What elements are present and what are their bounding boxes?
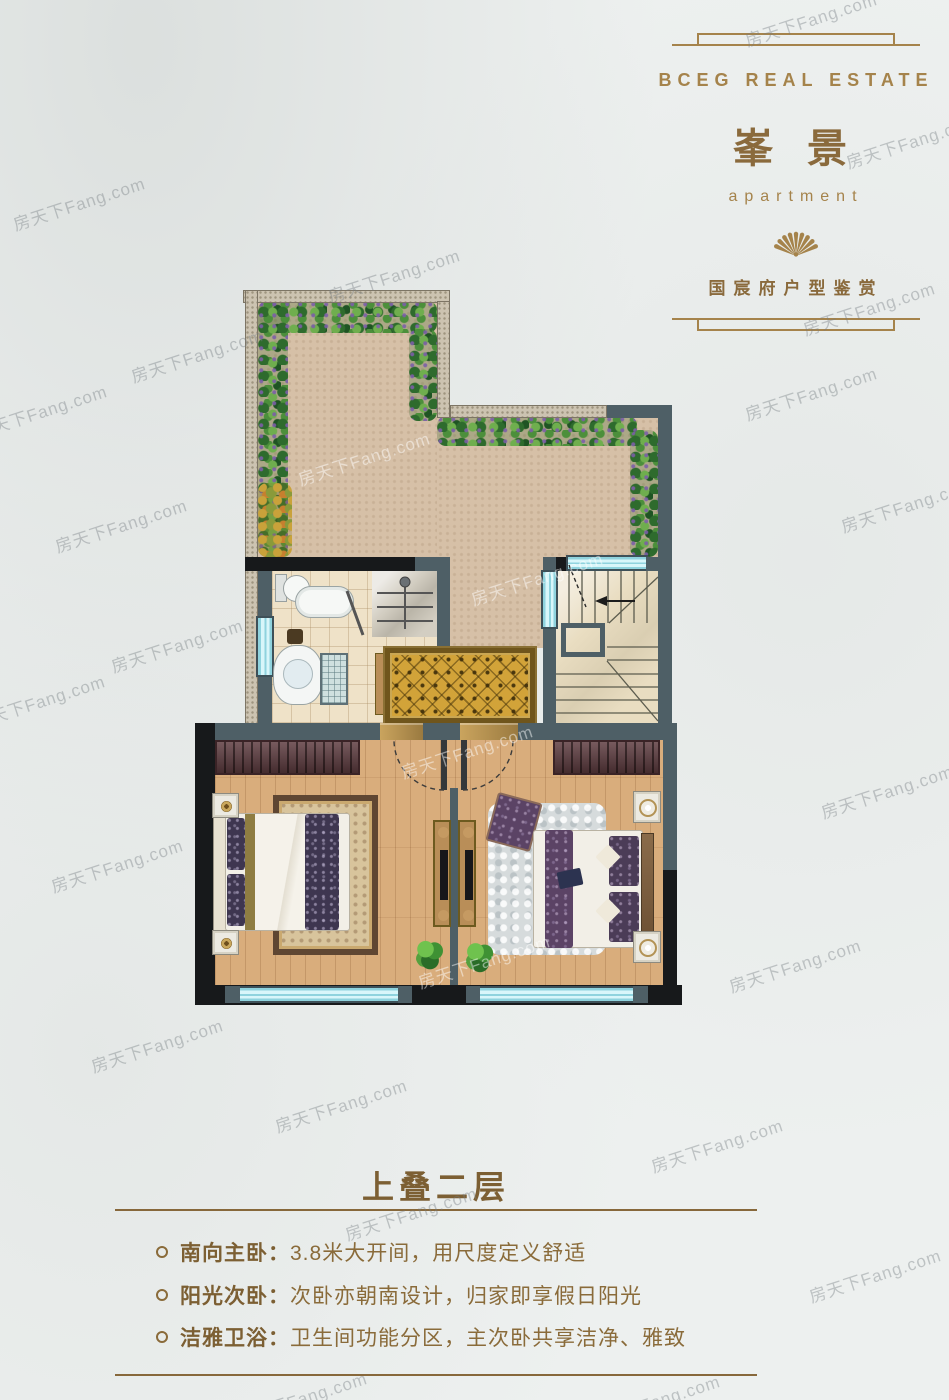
watermark: 房天下Fang.com [52,491,191,557]
bullet-text: 次卧亦朝南设计，归家即享假日阳光 [290,1280,642,1310]
bullet-dot-icon [156,1331,168,1343]
plan-annotations [195,285,682,1010]
bullet-label: 洁雅卫浴： [180,1322,290,1352]
bullet-dot-icon [156,1289,168,1301]
section-line-bottom [115,1374,757,1376]
watermark: 房天下Fang.com [585,1367,724,1400]
watermark: 房天下Fang.com [742,359,881,425]
bullet-dot-icon [156,1246,168,1258]
bullet-bathroom: 洁雅卫浴： 卫生间功能分区，主次卧共享洁净、雅致 [156,1322,686,1352]
watermark: 房天下Fang.com [272,1071,411,1137]
section-line-top [115,1209,757,1211]
watermark: 房天下Fang.com [232,1364,371,1400]
brand-name: BCEG REAL ESTATE [650,70,942,91]
section-title: 上叠二层 [136,1162,736,1208]
watermark: 房天下Fang.com [818,757,949,823]
watermark: 房天下Fang.com [0,377,110,443]
header-deco-rect-bottom [697,318,895,331]
watermark: 房天下Fang.com [48,831,187,897]
bullet-text: 3.8米大开间，用尺度定义舒适 [290,1237,586,1267]
watermark: 房天下Fang.com [0,667,108,733]
watermark: 房天下Fang.com [806,1241,945,1307]
page-title: 峯 景 [650,116,942,174]
floor-plan [195,285,682,1010]
bullet-master-bedroom: 南向主卧： 3.8米大开间，用尺度定义舒适 [156,1237,586,1267]
watermark: 房天下Fang.com [838,471,949,537]
bullet-label: 南向主卧： [180,1237,290,1267]
watermark: 房天下Fang.com [10,169,149,235]
page-subtitle: apartment [650,188,942,206]
header-deco-line-top [672,44,920,46]
bullet-second-bedroom: 阳光次卧： 次卧亦朝南设计，归家即享假日阳光 [156,1280,642,1310]
watermark: 房天下Fang.com [726,931,865,997]
watermark: 房天下Fang.com [88,1011,227,1077]
page: BCEG REAL ESTATE 峯 景 apartment 国宸府户型鉴赏 [0,0,949,1400]
bullet-label: 阳光次卧： [180,1280,290,1310]
tagline: 国宸府户型鉴赏 [650,274,942,299]
fan-icon [774,226,818,258]
bullet-text: 卫生间功能分区，主次卧共享洁净、雅致 [290,1322,686,1352]
